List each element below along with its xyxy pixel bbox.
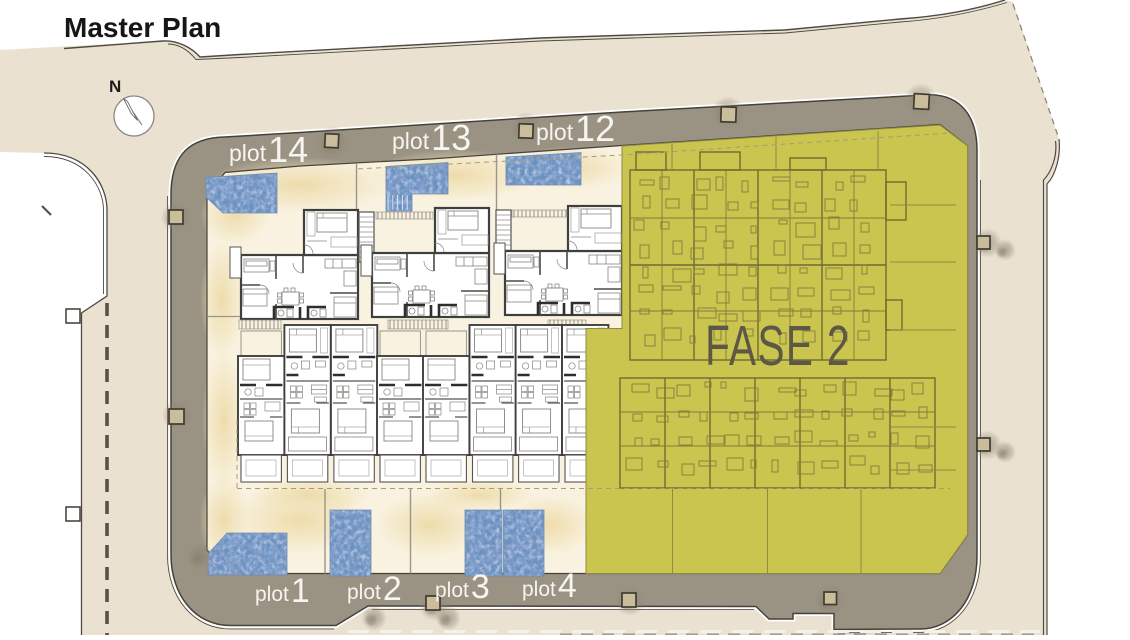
svg-text:N: N	[109, 77, 121, 96]
svg-text:Master Plan: Master Plan	[64, 12, 221, 43]
svg-text:FASE 2: FASE 2	[705, 314, 851, 377]
